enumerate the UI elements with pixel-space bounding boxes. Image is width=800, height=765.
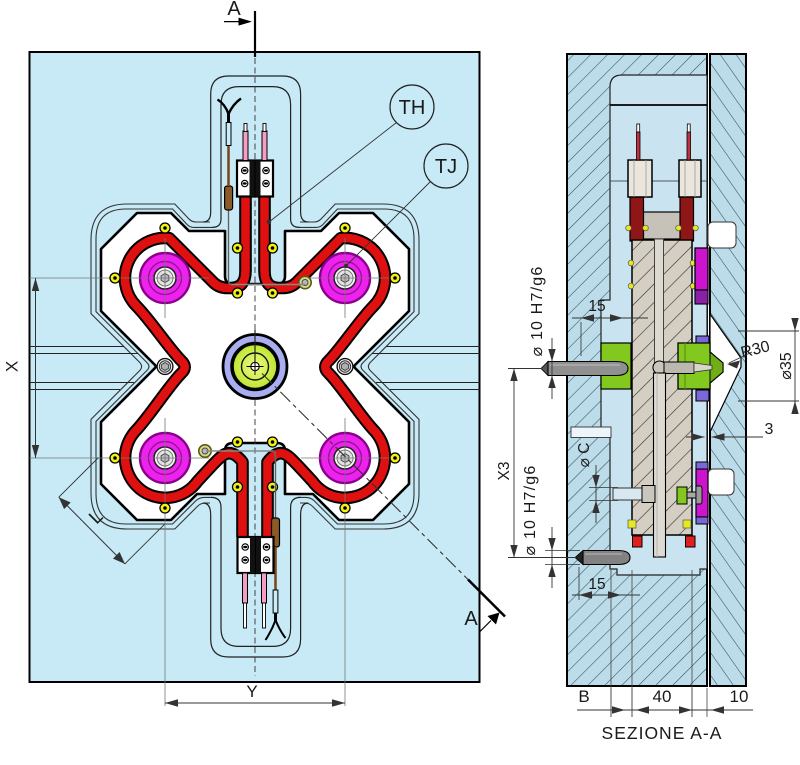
svg-text:15: 15 — [588, 298, 605, 315]
svg-text:10: 10 — [730, 687, 749, 706]
svg-text:TJ: TJ — [435, 156, 457, 178]
svg-text:40: 40 — [653, 687, 672, 706]
svg-text:⌀ 10 H7/g6: ⌀ 10 H7/g6 — [529, 265, 546, 356]
svg-text:15: 15 — [588, 576, 605, 593]
svg-text:TH: TH — [399, 97, 426, 119]
svg-text:⌀ C: ⌀ C — [576, 443, 593, 468]
svg-text:⌀35: ⌀35 — [778, 352, 795, 380]
svg-text:X: X — [3, 361, 22, 372]
svg-text:A: A — [464, 608, 478, 630]
svg-text:⌀ 10 H7/g6: ⌀ 10 H7/g6 — [522, 464, 539, 555]
svg-text:B: B — [578, 687, 589, 706]
svg-text:X3: X3 — [496, 462, 513, 481]
svg-text:A: A — [227, 0, 241, 20]
svg-text:Y: Y — [246, 682, 257, 701]
svg-text:SEZIONE A-A: SEZIONE A-A — [602, 723, 723, 743]
svg-text:3: 3 — [765, 421, 774, 438]
